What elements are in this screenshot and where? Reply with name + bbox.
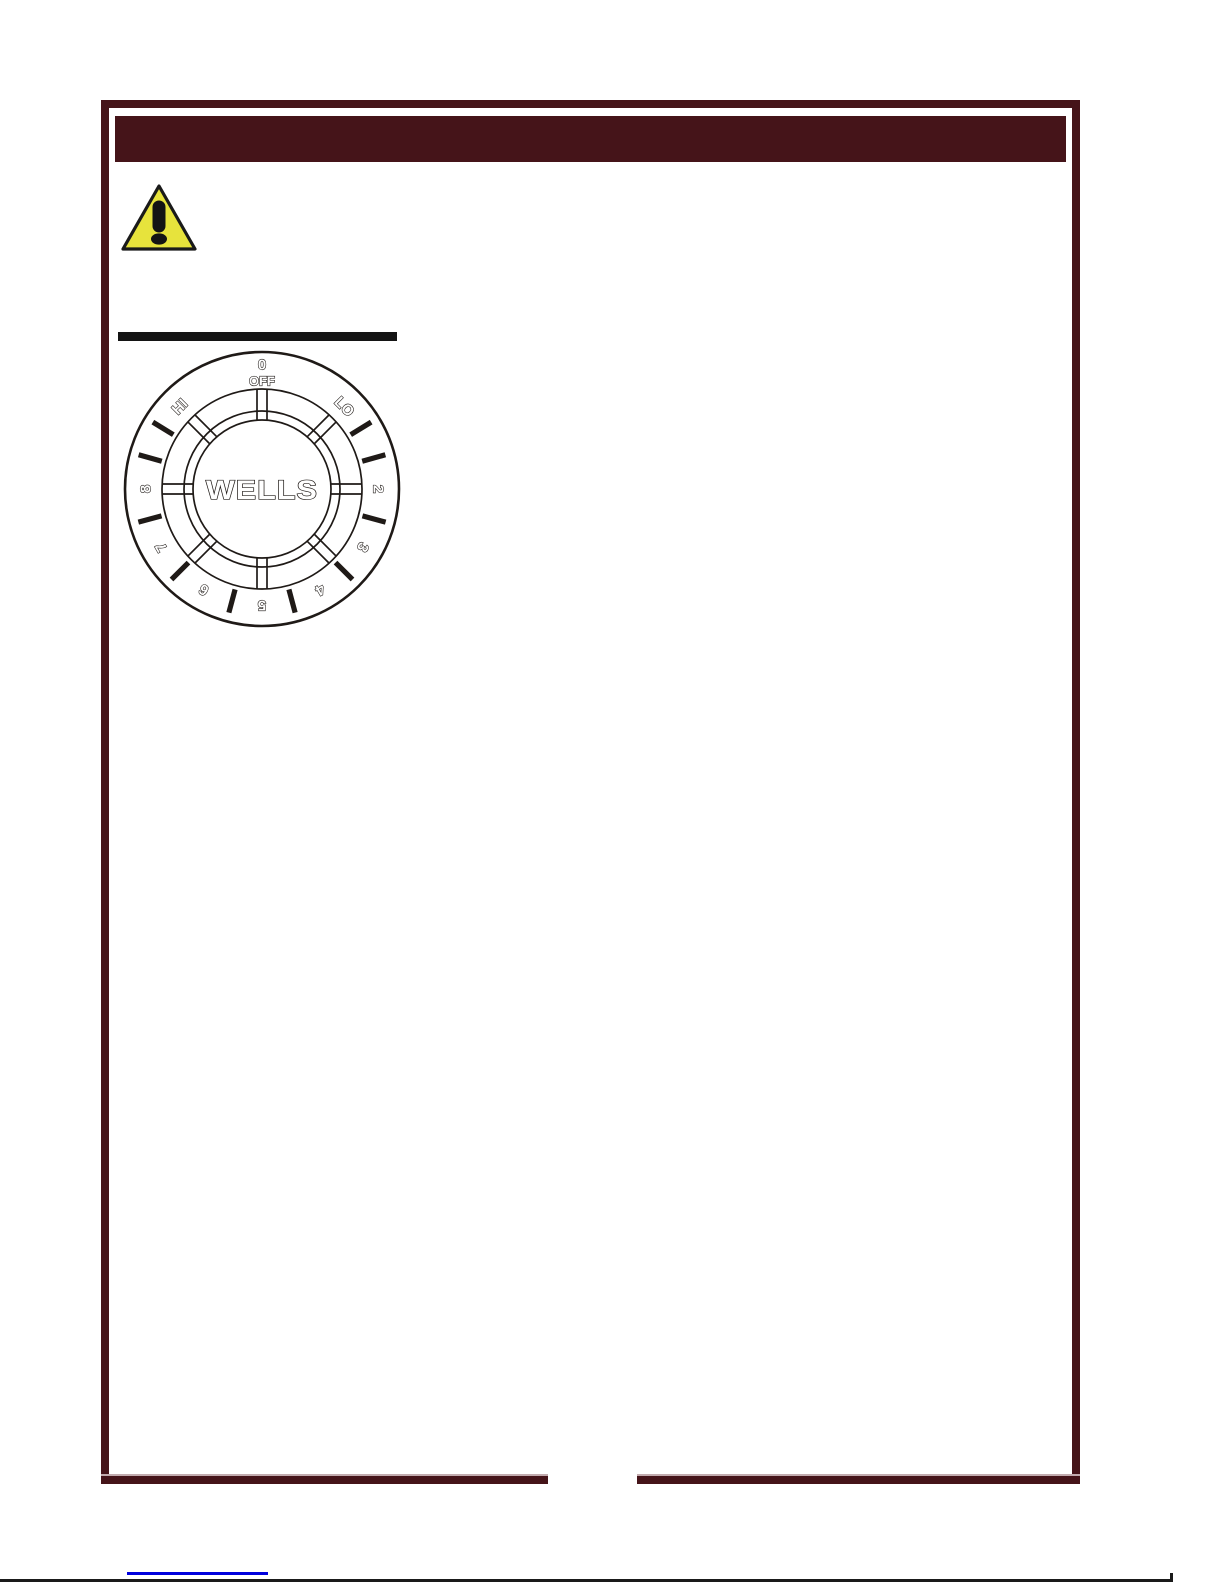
page-frame-bottom-border-right-segment (637, 1474, 1080, 1484)
dial-scale-tick (351, 422, 371, 435)
control-dial-svg: 0OFFLO2345678HIWELLS (119, 346, 405, 632)
exclamation-dot (151, 233, 167, 244)
next-page-corner-mark (1170, 1573, 1173, 1579)
dial-scale-tick (138, 516, 161, 522)
dial-spoke (188, 534, 210, 556)
dial-label-6: 6 (196, 580, 212, 599)
document-page: 0OFFLO2345678HIWELLS (0, 0, 1225, 1585)
page-frame-bottom-border-left-segment (101, 1474, 548, 1484)
section-header-bar (115, 116, 1066, 162)
warning-triangle-svg (119, 181, 199, 255)
dial-spoke (314, 534, 336, 556)
wells-control-dial-illustration: 0OFFLO2345678HIWELLS (119, 346, 405, 632)
page-frame-top-border (101, 100, 1080, 108)
dial-label-0: 0 (258, 357, 266, 374)
dial-label-4: 4 (312, 580, 328, 599)
dial-scale-tick (171, 563, 188, 580)
dial-label-7: 7 (152, 539, 171, 555)
dial-label-hi: HI (169, 396, 192, 419)
dial-label-2: 2 (370, 485, 387, 493)
dial-scale-tick (362, 455, 385, 461)
dial-scale-tick (153, 422, 173, 435)
dial-scale-tick (139, 455, 162, 461)
heading-rule-bar (118, 332, 397, 341)
dial-scale-tick (289, 589, 295, 612)
dial-label-off: OFF (249, 374, 275, 389)
dial-label-8: 8 (138, 485, 155, 493)
dial-brand-text: WELLS (206, 475, 318, 505)
dial-label-5: 5 (258, 597, 266, 614)
footer-hyperlink-underline[interactable] (127, 1572, 268, 1575)
page-frame-left-border (101, 100, 109, 1484)
dial-scale-tick (362, 516, 385, 522)
warning-triangle-icon (119, 181, 199, 255)
dial-scale-tick (336, 563, 353, 580)
dial-label-lo: LO (331, 394, 358, 421)
page-bottom-divider-line (0, 1579, 1173, 1582)
page-frame-right-border (1072, 100, 1080, 1484)
dial-label-3: 3 (353, 539, 372, 555)
dial-scale-tick (229, 589, 235, 612)
